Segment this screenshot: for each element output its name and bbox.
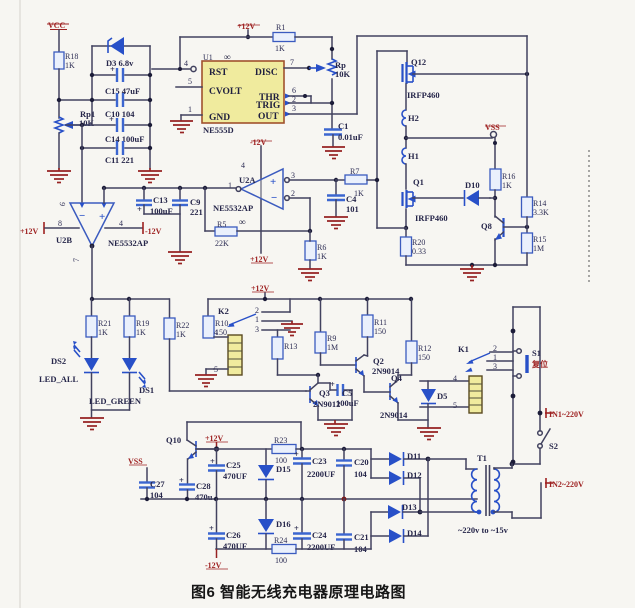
svg-text:3: 3 (493, 362, 497, 371)
svg-text:R7: R7 (350, 167, 359, 176)
svg-text:7: 7 (72, 258, 81, 262)
svg-text:-12V: -12V (145, 227, 162, 236)
svg-text:4: 4 (119, 219, 123, 228)
svg-text:1: 1 (188, 105, 192, 114)
svg-text:100uF: 100uF (336, 398, 359, 408)
svg-text:2: 2 (291, 189, 295, 198)
svg-text:R22: R22 (176, 321, 189, 330)
svg-text:R12: R12 (418, 344, 431, 353)
svg-text:+: + (210, 456, 215, 466)
svg-text:R1: R1 (276, 23, 285, 32)
svg-text:C1: C1 (338, 121, 348, 131)
svg-text:C28: C28 (196, 481, 211, 491)
svg-text:C20: C20 (354, 457, 369, 467)
svg-text:101: 101 (346, 204, 359, 214)
svg-text:R19: R19 (136, 319, 149, 328)
svg-text:C23: C23 (312, 456, 327, 466)
svg-text:R6: R6 (317, 243, 326, 252)
svg-text:D14: D14 (407, 528, 422, 538)
svg-text:Q2: Q2 (373, 356, 384, 366)
svg-text:U2B: U2B (56, 235, 72, 245)
svg-text:C14 100uF: C14 100uF (105, 134, 144, 144)
svg-text:R13: R13 (284, 342, 297, 351)
svg-text:C9: C9 (190, 197, 200, 207)
svg-text:CVOLT: CVOLT (209, 87, 242, 97)
svg-text:150: 150 (418, 353, 430, 362)
svg-text:VCC: VCC (48, 21, 66, 30)
svg-text:5: 5 (453, 401, 457, 410)
svg-text:1K: 1K (502, 181, 512, 190)
svg-text:∞: ∞ (224, 53, 231, 63)
svg-text:R14: R14 (533, 199, 546, 208)
svg-text:R23: R23 (274, 436, 287, 445)
svg-text:R10: R10 (215, 319, 228, 328)
svg-text:VSS: VSS (485, 123, 500, 132)
svg-text:+: + (137, 204, 142, 214)
svg-text:GND: GND (209, 113, 230, 123)
svg-text:1K: 1K (136, 328, 146, 337)
svg-text:NE5532AP: NE5532AP (213, 203, 253, 213)
svg-text:C4: C4 (346, 194, 357, 204)
svg-text:D16: D16 (276, 519, 291, 529)
svg-text:0.01uF: 0.01uF (338, 132, 363, 142)
svg-text:4: 4 (453, 374, 457, 383)
svg-text:1M: 1M (327, 343, 338, 352)
svg-text:C13: C13 (153, 195, 168, 205)
svg-text:1: 1 (255, 315, 259, 324)
svg-text:2200UF: 2200UF (307, 469, 335, 479)
svg-text:10K: 10K (335, 69, 351, 79)
svg-text:100: 100 (275, 556, 287, 565)
svg-text:R11: R11 (374, 318, 387, 327)
svg-text:C21: C21 (354, 532, 369, 542)
svg-text:Q12: Q12 (411, 57, 426, 67)
svg-text:D12: D12 (407, 470, 422, 480)
svg-text:R18: R18 (65, 52, 78, 61)
svg-text:1: 1 (493, 353, 497, 362)
svg-text:100uF: 100uF (150, 206, 173, 216)
svg-text:0.33: 0.33 (412, 247, 426, 256)
svg-text:2: 2 (493, 344, 497, 353)
svg-text:R5: R5 (217, 220, 226, 229)
svg-text:C25: C25 (226, 460, 241, 470)
svg-text:∞: ∞ (239, 218, 246, 228)
svg-text:IN2~220V: IN2~220V (549, 480, 584, 489)
svg-text:+: + (109, 114, 114, 124)
svg-text:NE555D: NE555D (203, 125, 234, 135)
svg-text:U1: U1 (203, 53, 213, 62)
svg-text:6: 6 (292, 86, 296, 95)
svg-text:470UF: 470UF (223, 471, 247, 481)
svg-text:T1: T1 (477, 453, 487, 463)
svg-text:C24: C24 (312, 530, 327, 540)
svg-text:S2: S2 (549, 441, 558, 451)
svg-text:D15: D15 (276, 464, 291, 474)
svg-text:+: + (294, 449, 299, 459)
svg-text:1K: 1K (176, 330, 186, 339)
svg-text:+12V: +12V (20, 227, 39, 236)
svg-text:1K: 1K (65, 61, 75, 70)
svg-text:TRIG: TRIG (256, 101, 281, 111)
svg-text:DS1: DS1 (139, 385, 154, 395)
svg-text:1K: 1K (98, 328, 108, 337)
svg-text:+: + (209, 523, 214, 533)
svg-text:104: 104 (354, 469, 368, 479)
svg-text:−: − (271, 192, 277, 204)
svg-text:+12V: +12V (237, 22, 256, 31)
svg-text:1M: 1M (533, 244, 544, 253)
svg-text:150: 150 (374, 327, 386, 336)
svg-text:H2: H2 (408, 113, 419, 123)
svg-text:3: 3 (255, 325, 259, 334)
svg-text:R20: R20 (412, 238, 425, 247)
svg-text:D11: D11 (407, 451, 421, 461)
svg-text:+: + (110, 64, 115, 74)
svg-text:K1: K1 (458, 344, 469, 354)
svg-text:+: + (99, 211, 105, 223)
svg-text:−: − (79, 210, 85, 222)
svg-text:Q8: Q8 (481, 221, 492, 231)
svg-text:2: 2 (255, 306, 259, 315)
svg-text:C11 221: C11 221 (105, 155, 134, 165)
svg-text:2200UF: 2200UF (307, 542, 335, 552)
svg-text:1K: 1K (275, 44, 285, 53)
svg-text:+: + (330, 379, 335, 389)
svg-text:OUT: OUT (258, 112, 279, 122)
svg-text:R21: R21 (98, 319, 111, 328)
svg-text:7: 7 (290, 58, 294, 67)
svg-text:3: 3 (291, 171, 295, 180)
svg-text:C26: C26 (226, 530, 241, 540)
svg-text:22K: 22K (215, 239, 229, 248)
svg-text:~220v to ~15v: ~220v to ~15v (458, 525, 509, 535)
svg-text:Q3: Q3 (319, 388, 330, 398)
svg-text:-12V: -12V (250, 138, 267, 147)
svg-text:IRFP460: IRFP460 (407, 90, 440, 100)
svg-text:4: 4 (214, 328, 218, 337)
svg-text:DISC: DISC (255, 68, 278, 78)
svg-text:Q10: Q10 (166, 435, 181, 445)
svg-text:R15: R15 (533, 235, 546, 244)
svg-text:D5: D5 (437, 391, 447, 401)
svg-text:U2A: U2A (239, 175, 256, 185)
svg-text:RST: RST (209, 68, 228, 78)
svg-text:IN1~220V: IN1~220V (549, 410, 584, 419)
svg-text:+: + (294, 523, 299, 533)
svg-text:R9: R9 (327, 334, 336, 343)
svg-text:NE5532AP: NE5532AP (108, 238, 148, 248)
svg-text:LED_GREEN: LED_GREEN (89, 396, 142, 406)
svg-text:DS2: DS2 (51, 356, 66, 366)
svg-text:H1: H1 (408, 151, 419, 161)
svg-text:D13: D13 (402, 502, 417, 512)
svg-text:IRFP460: IRFP460 (415, 213, 448, 223)
svg-text:Q1: Q1 (413, 177, 424, 187)
svg-text:5: 5 (188, 77, 192, 86)
svg-text:2N9014: 2N9014 (380, 410, 408, 420)
svg-text:R24: R24 (274, 536, 287, 545)
svg-text:4: 4 (184, 59, 188, 68)
svg-text:D10: D10 (465, 180, 480, 190)
svg-text:K2: K2 (218, 306, 229, 316)
svg-text:+: + (179, 475, 184, 485)
svg-text:R16: R16 (502, 172, 515, 181)
svg-text:470u: 470u (195, 492, 213, 502)
svg-text:221: 221 (190, 207, 203, 217)
svg-text:3: 3 (292, 104, 296, 113)
svg-text:3.3K: 3.3K (533, 208, 549, 217)
svg-text:8: 8 (58, 219, 62, 228)
svg-text:4: 4 (241, 161, 245, 170)
svg-text:2: 2 (292, 95, 296, 104)
svg-text:C27: C27 (150, 479, 165, 489)
svg-text:LED_ALL: LED_ALL (39, 374, 79, 384)
svg-text:图6 智能无线充电器原理电路图: 图6 智能无线充电器原理电路图 (191, 583, 406, 601)
svg-text:+: + (270, 176, 276, 188)
svg-text:1K: 1K (317, 252, 327, 261)
svg-text:C5: C5 (342, 388, 352, 398)
